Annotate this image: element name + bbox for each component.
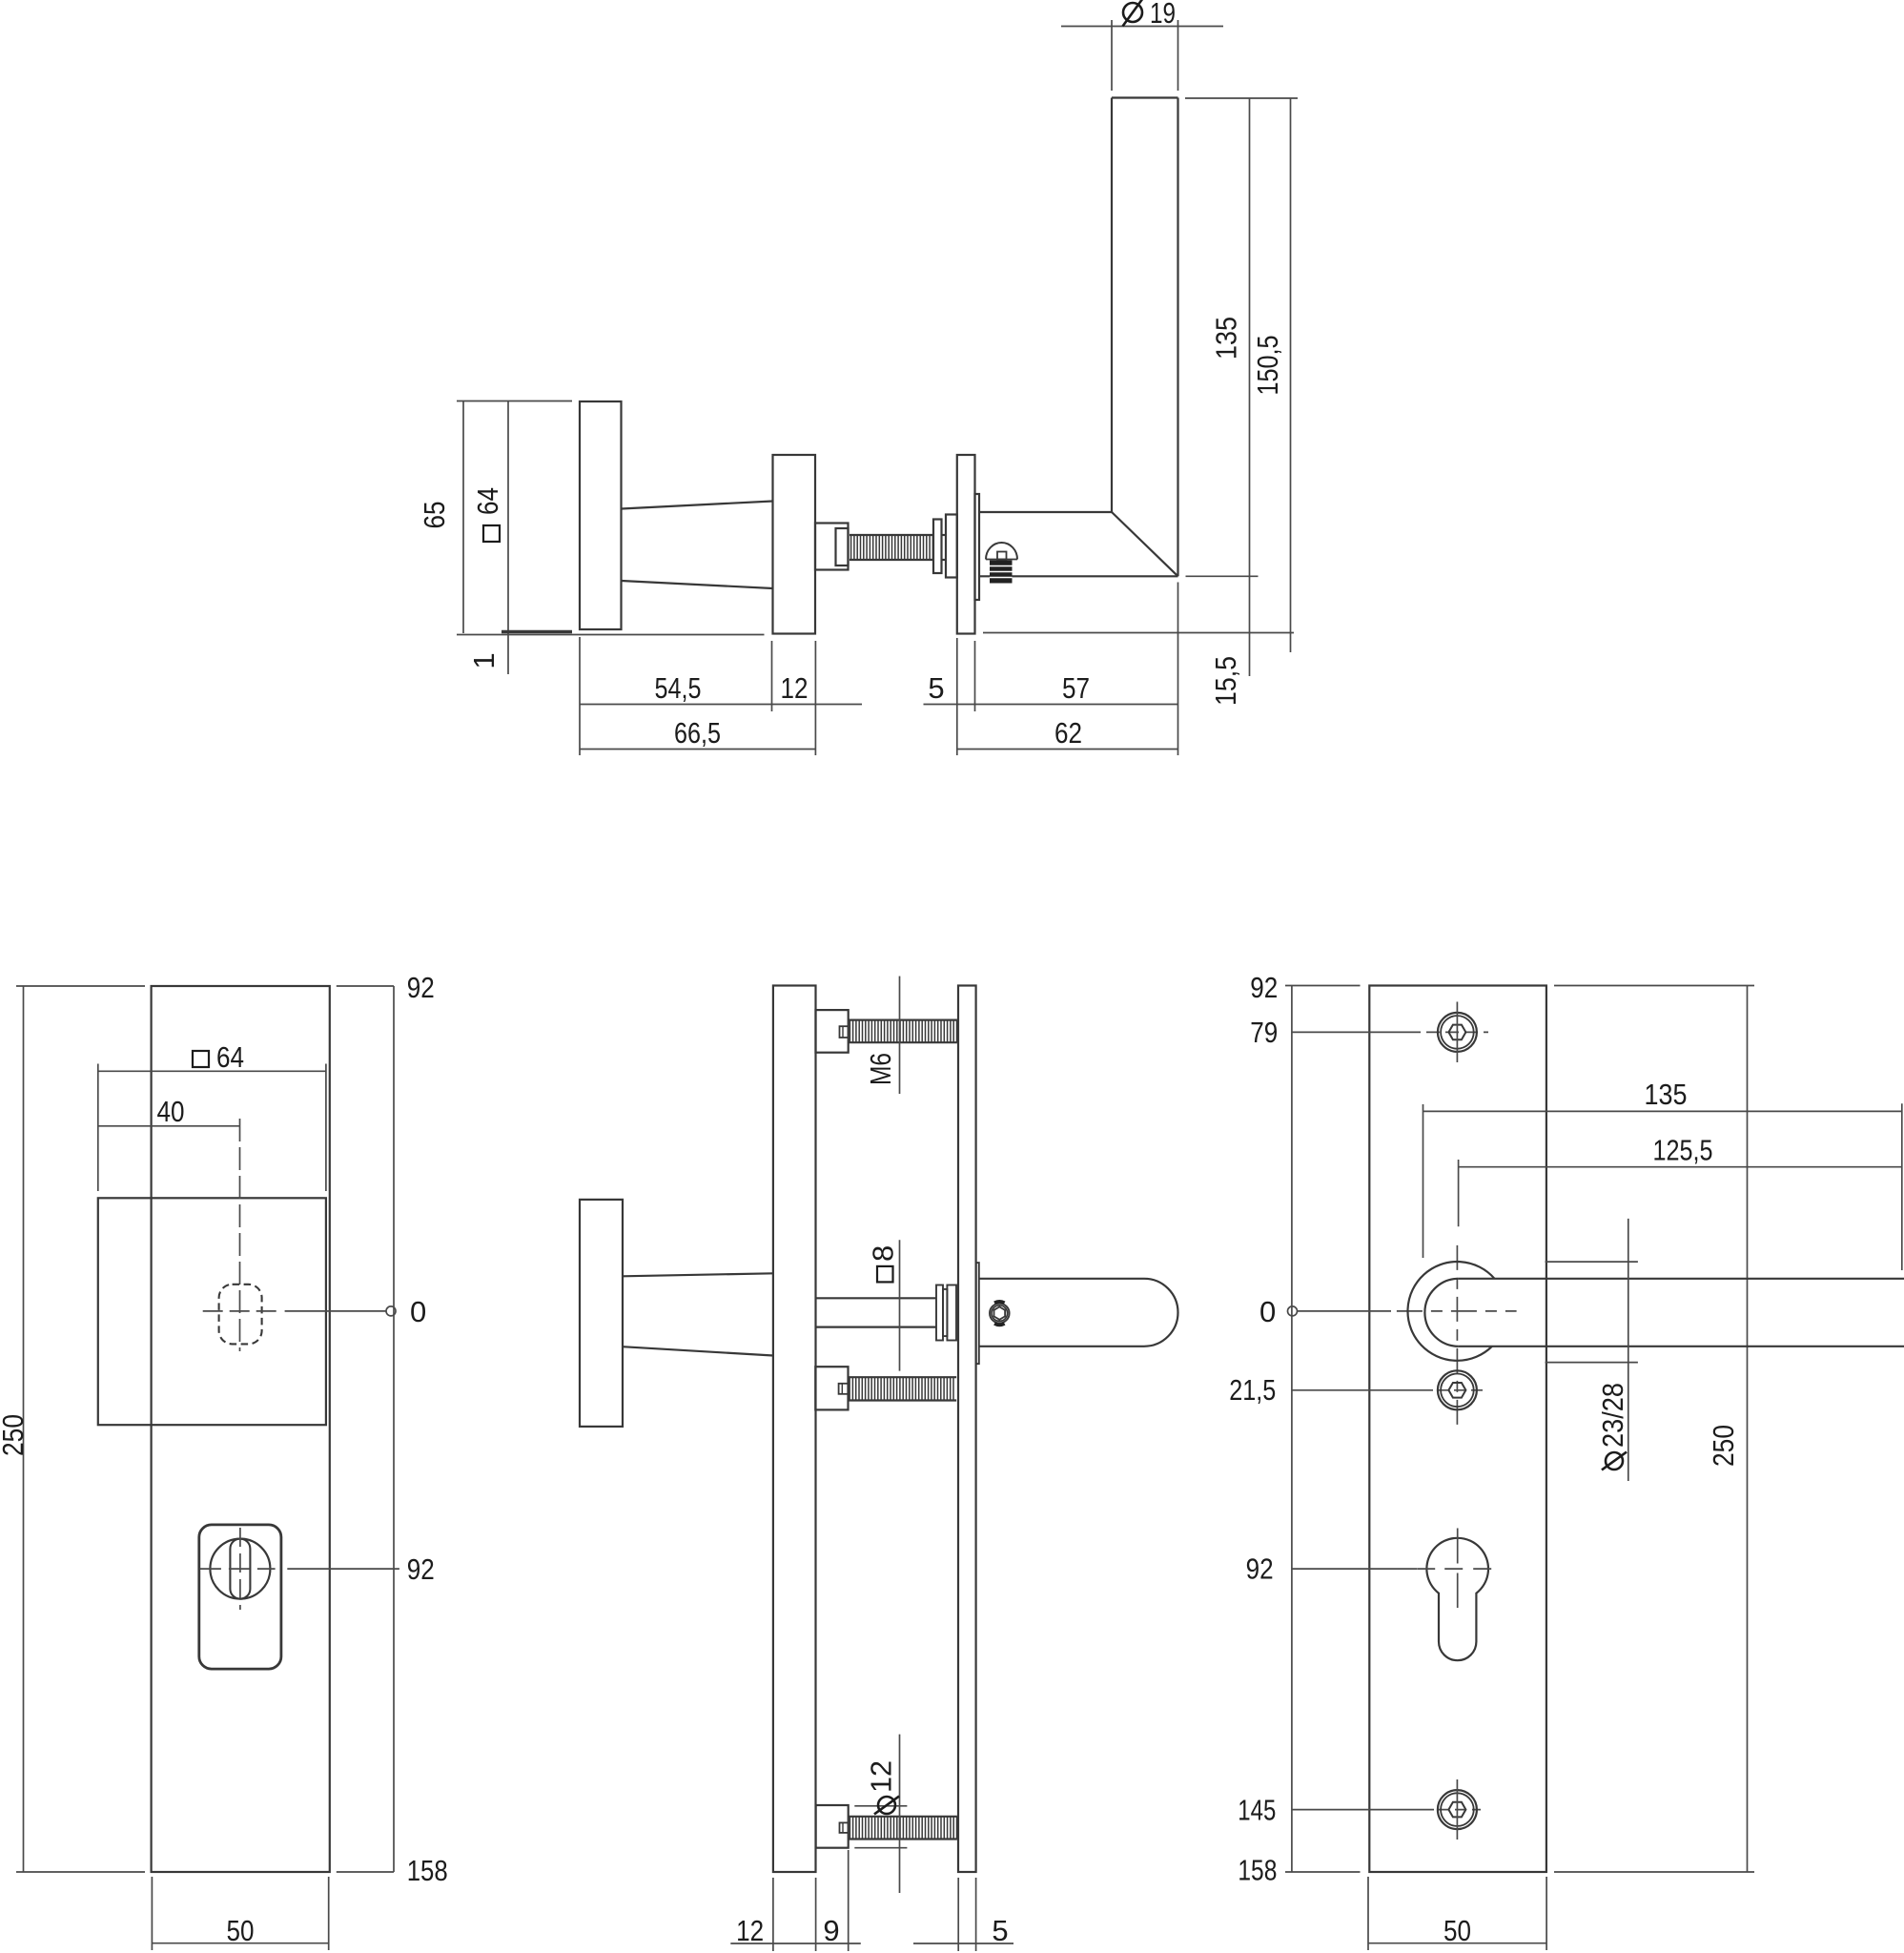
- svg-text:125,5: 125,5: [1653, 1134, 1713, 1167]
- svg-text:135: 135: [1645, 1078, 1688, 1111]
- svg-text:50: 50: [1443, 1914, 1471, 1947]
- svg-text:12: 12: [865, 1760, 898, 1793]
- svg-text:21,5: 21,5: [1229, 1373, 1276, 1407]
- svg-text:250: 250: [1707, 1425, 1740, 1467]
- svg-text:158: 158: [1238, 1854, 1277, 1887]
- svg-text:57: 57: [1062, 671, 1090, 705]
- svg-text:54,5: 54,5: [655, 671, 702, 705]
- svg-text:12: 12: [736, 1914, 764, 1947]
- svg-text:1: 1: [467, 652, 501, 668]
- svg-text:M6: M6: [864, 1053, 897, 1085]
- svg-text:92: 92: [1250, 971, 1278, 1004]
- svg-text:62: 62: [1054, 716, 1082, 750]
- svg-text:92: 92: [1246, 1552, 1274, 1586]
- svg-text:0: 0: [1259, 1295, 1276, 1328]
- svg-text:9: 9: [823, 1914, 839, 1947]
- svg-text:66,5: 66,5: [674, 716, 721, 750]
- svg-text:64: 64: [216, 1040, 244, 1074]
- svg-text:135: 135: [1210, 317, 1243, 360]
- svg-text:92: 92: [407, 971, 435, 1004]
- svg-text:158: 158: [407, 1854, 448, 1887]
- svg-text:19: 19: [1150, 0, 1176, 30]
- svg-text:79: 79: [1250, 1016, 1278, 1049]
- svg-text:65: 65: [418, 502, 451, 529]
- svg-text:5: 5: [928, 671, 944, 705]
- svg-text:145: 145: [1238, 1794, 1276, 1827]
- svg-text:40: 40: [157, 1095, 185, 1128]
- svg-text:0: 0: [410, 1295, 426, 1328]
- svg-text:92: 92: [407, 1552, 435, 1586]
- svg-text:15,5: 15,5: [1209, 656, 1242, 706]
- svg-text:8: 8: [867, 1245, 900, 1262]
- svg-text:250: 250: [0, 1414, 30, 1456]
- svg-text:12: 12: [781, 671, 809, 705]
- svg-text:5: 5: [992, 1914, 1008, 1947]
- svg-text:50: 50: [227, 1914, 255, 1947]
- svg-text:150,5: 150,5: [1251, 336, 1284, 396]
- svg-text:64: 64: [471, 487, 504, 515]
- svg-text:23/28: 23/28: [1596, 1383, 1629, 1448]
